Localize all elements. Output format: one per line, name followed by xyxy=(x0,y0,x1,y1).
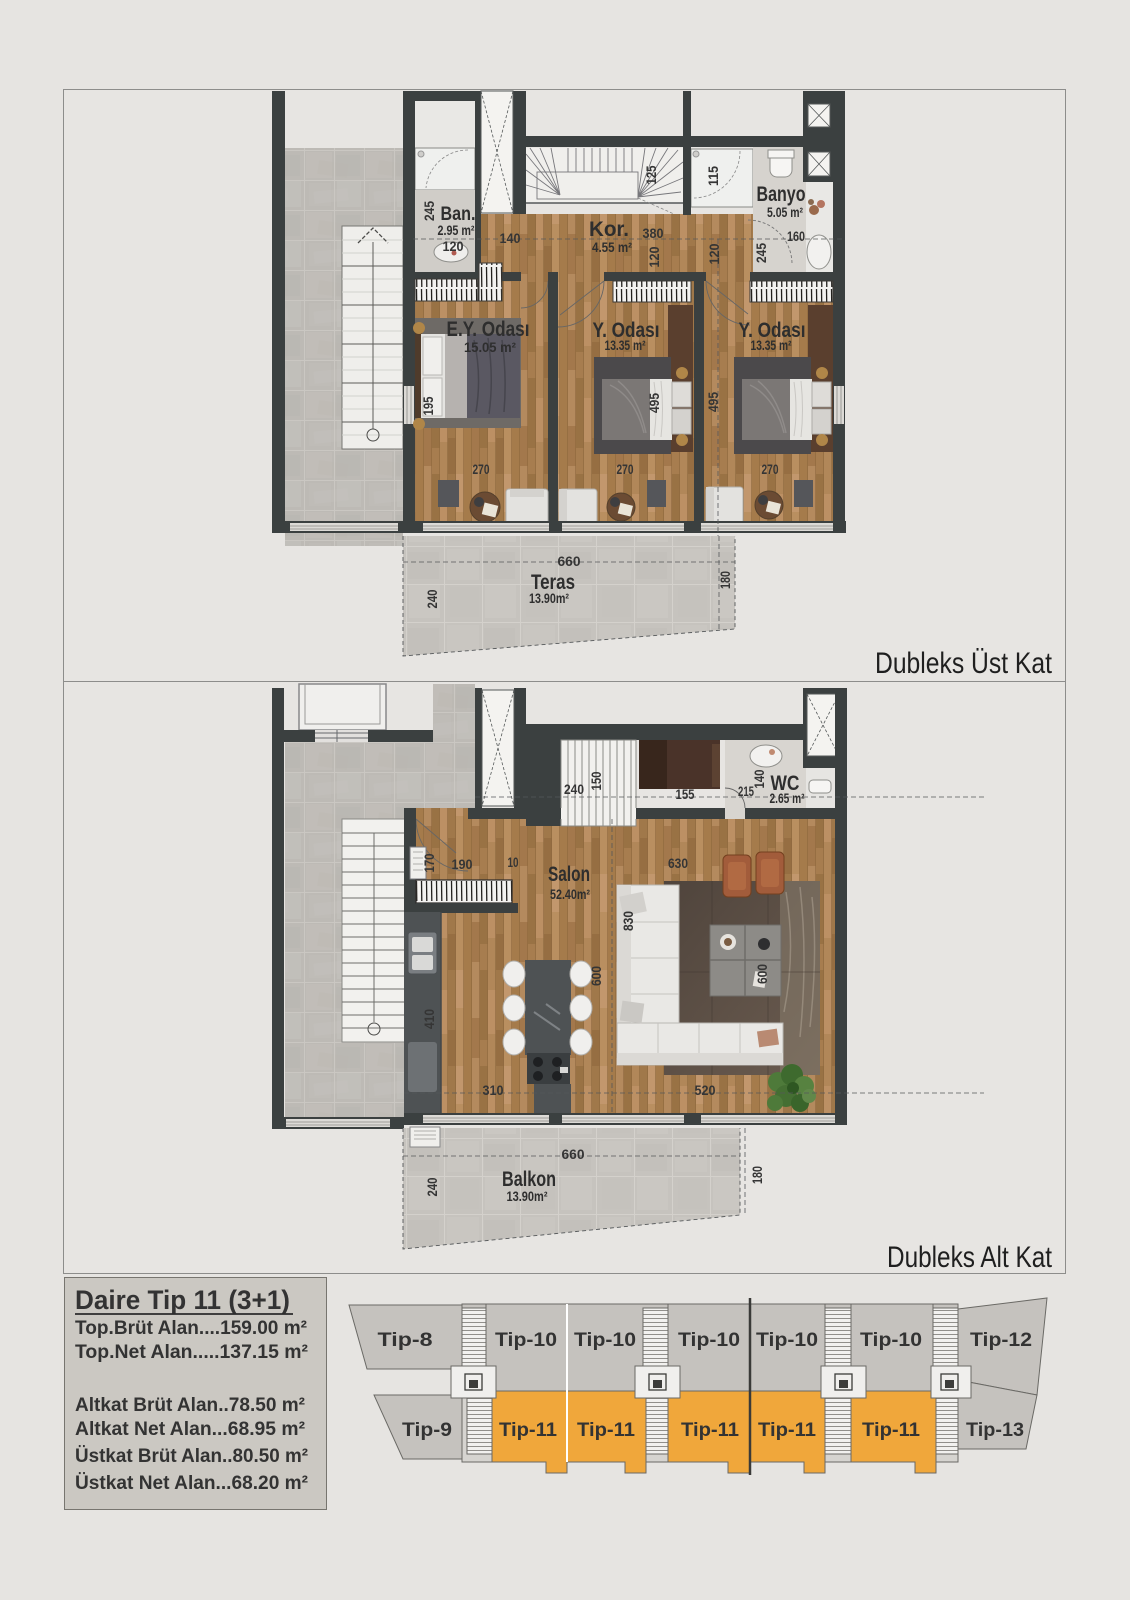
svg-text:Daire Tip 11 (3+1): Daire Tip 11 (3+1) xyxy=(75,1285,290,1315)
svg-text:380: 380 xyxy=(643,225,664,241)
svg-text:Kor.: Kor. xyxy=(589,218,629,241)
svg-text:240: 240 xyxy=(564,781,584,797)
svg-text:Tip-9: Tip-9 xyxy=(402,1420,452,1441)
svg-text:Tip-11: Tip-11 xyxy=(499,1420,557,1441)
svg-text:270: 270 xyxy=(762,461,779,477)
svg-text:Üstkat Brüt Alan..80.50 m²: Üstkat Brüt Alan..80.50 m² xyxy=(75,1446,308,1467)
svg-text:120: 120 xyxy=(443,238,464,254)
svg-text:Üstkat Net Alan...68.20 m²: Üstkat Net Alan...68.20 m² xyxy=(75,1473,308,1494)
svg-text:600: 600 xyxy=(754,964,770,984)
svg-text:Tip-11: Tip-11 xyxy=(758,1420,816,1441)
svg-text:245: 245 xyxy=(753,243,769,263)
svg-text:520: 520 xyxy=(695,1082,716,1098)
svg-text:Tip-11: Tip-11 xyxy=(577,1420,635,1441)
svg-text:Tip-10: Tip-10 xyxy=(678,1330,740,1351)
svg-text:160: 160 xyxy=(787,228,805,244)
svg-text:4.55 m²: 4.55 m² xyxy=(592,239,632,255)
svg-text:240: 240 xyxy=(424,1177,440,1196)
svg-text:120: 120 xyxy=(646,246,662,267)
svg-text:630: 630 xyxy=(668,855,688,871)
svg-text:660: 660 xyxy=(558,553,581,569)
svg-text:245: 245 xyxy=(421,201,437,221)
svg-text:Tip-10: Tip-10 xyxy=(756,1330,818,1351)
svg-text:E.Y. Odası: E.Y. Odası xyxy=(447,318,530,341)
svg-text:495: 495 xyxy=(646,393,662,413)
svg-text:140: 140 xyxy=(751,769,767,788)
svg-text:495: 495 xyxy=(705,392,721,412)
svg-text:Dubleks Üst Kat: Dubleks Üst Kat xyxy=(875,647,1053,680)
svg-text:270: 270 xyxy=(473,461,490,477)
svg-text:125: 125 xyxy=(643,165,659,184)
svg-text:310: 310 xyxy=(483,1082,504,1098)
svg-text:10: 10 xyxy=(508,854,519,870)
svg-text:270: 270 xyxy=(617,461,634,477)
svg-text:Tip-11: Tip-11 xyxy=(681,1420,739,1441)
svg-text:Altkat Net Alan...68.95 m²: Altkat Net Alan...68.95 m² xyxy=(75,1419,305,1440)
svg-text:240: 240 xyxy=(424,589,440,608)
svg-text:Top.Net Alan.....137.15 m²: Top.Net Alan.....137.15 m² xyxy=(75,1342,308,1363)
svg-text:155: 155 xyxy=(676,786,695,802)
svg-text:15.05 m²: 15.05 m² xyxy=(464,339,516,355)
svg-text:Tip-13: Tip-13 xyxy=(966,1420,1024,1441)
svg-text:115: 115 xyxy=(705,166,721,186)
svg-text:13.35 m²: 13.35 m² xyxy=(605,337,646,353)
svg-text:Tip-10: Tip-10 xyxy=(495,1330,557,1351)
svg-text:Altkat Brüt Alan..78.50 m²: Altkat Brüt Alan..78.50 m² xyxy=(75,1395,305,1416)
svg-text:Tip-12: Tip-12 xyxy=(970,1330,1032,1351)
svg-text:180: 180 xyxy=(749,1166,765,1184)
svg-text:Banyo: Banyo xyxy=(757,183,806,206)
svg-text:Dubleks Alt Kat: Dubleks Alt Kat xyxy=(887,1241,1053,1273)
svg-text:195: 195 xyxy=(420,396,436,415)
svg-text:13.90m²: 13.90m² xyxy=(529,590,569,606)
svg-text:13.35 m²: 13.35 m² xyxy=(751,337,792,353)
svg-text:600: 600 xyxy=(588,966,604,986)
svg-text:2.65 m²: 2.65 m² xyxy=(770,790,805,806)
svg-text:Tip-10: Tip-10 xyxy=(574,1330,636,1351)
svg-text:140: 140 xyxy=(500,230,521,246)
svg-text:660: 660 xyxy=(562,1146,585,1162)
svg-text:150: 150 xyxy=(588,771,604,790)
svg-text:830: 830 xyxy=(620,911,636,931)
svg-text:Tip-10: Tip-10 xyxy=(860,1330,922,1351)
svg-text:Salon: Salon xyxy=(548,863,590,886)
svg-text:410: 410 xyxy=(421,1009,437,1029)
svg-text:Tip-11: Tip-11 xyxy=(862,1420,920,1441)
svg-text:190: 190 xyxy=(452,856,473,872)
svg-text:Top.Brüt Alan....159.00 m²: Top.Brüt Alan....159.00 m² xyxy=(75,1318,307,1339)
svg-text:52.40m²: 52.40m² xyxy=(550,886,590,902)
svg-text:5.05 m²: 5.05 m² xyxy=(767,204,803,220)
svg-text:13.90m²: 13.90m² xyxy=(507,1188,548,1204)
svg-text:2.95 m²: 2.95 m² xyxy=(438,222,475,238)
svg-text:120: 120 xyxy=(706,243,722,264)
svg-text:170: 170 xyxy=(421,853,437,872)
svg-text:Tip-8: Tip-8 xyxy=(378,1330,433,1351)
svg-text:180: 180 xyxy=(717,571,733,589)
